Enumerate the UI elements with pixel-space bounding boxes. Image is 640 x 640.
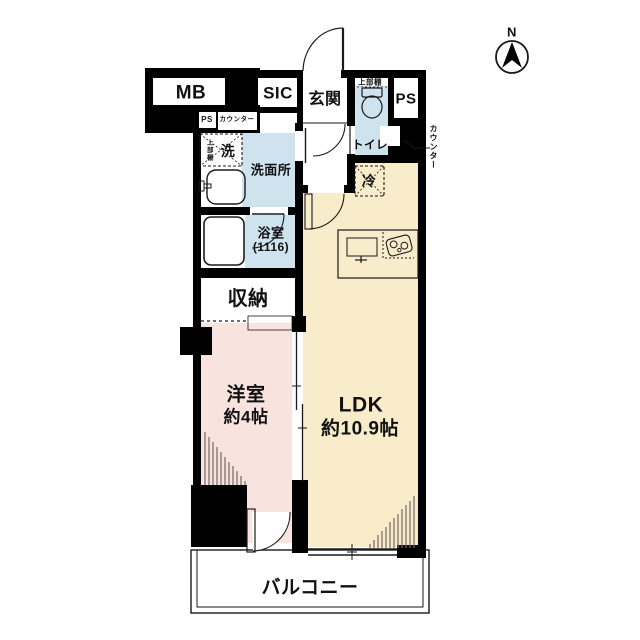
compass [496, 41, 528, 73]
label-shelf-toilet: 上部棚 [358, 78, 382, 86]
room-label-washroom: 洗面所 [251, 164, 292, 177]
label-fridge: 冷 [362, 174, 377, 188]
room-label-sic: SIC [263, 85, 293, 102]
label-ps-small: PS [201, 116, 213, 124]
compass-n-label: N [507, 26, 517, 39]
basin-icon [199, 170, 245, 204]
room-label-bath: 浴室 [257, 227, 284, 240]
room-label-western: 洋室 [226, 386, 265, 405]
genkan-door [303, 123, 347, 156]
label-ldk-size: 約10.9帖 [321, 420, 399, 439]
room-label-genkan: 玄関 [308, 92, 341, 108]
room-label-closet: 収納 [228, 289, 269, 309]
label-washer: 洗 [221, 144, 236, 158]
washroom-door-gap [295, 131, 303, 161]
label-western-size: 約4帖 [224, 409, 269, 426]
label-counter-small: カウンター [220, 117, 255, 124]
room-label-toilet: トイレ [352, 140, 388, 152]
label-bath-size: (1116) [253, 241, 289, 253]
room-label-ps-top: PS [395, 92, 416, 107]
western-balcony-door [247, 509, 290, 552]
floor-plan: N MB SIC 玄関 上部棚 PS トイレ カウンター PS カウンター 上部… [0, 0, 640, 640]
room-label-balcony: バルコニー [261, 579, 358, 598]
entry-door [303, 28, 343, 71]
room-label-mb: MB [176, 84, 207, 103]
room-label-ldk: LDK [339, 395, 384, 416]
label-shelf-washer: 上部棚 [205, 139, 212, 162]
compass-arrow-icon [502, 42, 522, 68]
bathtub-icon [204, 217, 244, 265]
label-counter-right: カウンター [429, 125, 437, 170]
